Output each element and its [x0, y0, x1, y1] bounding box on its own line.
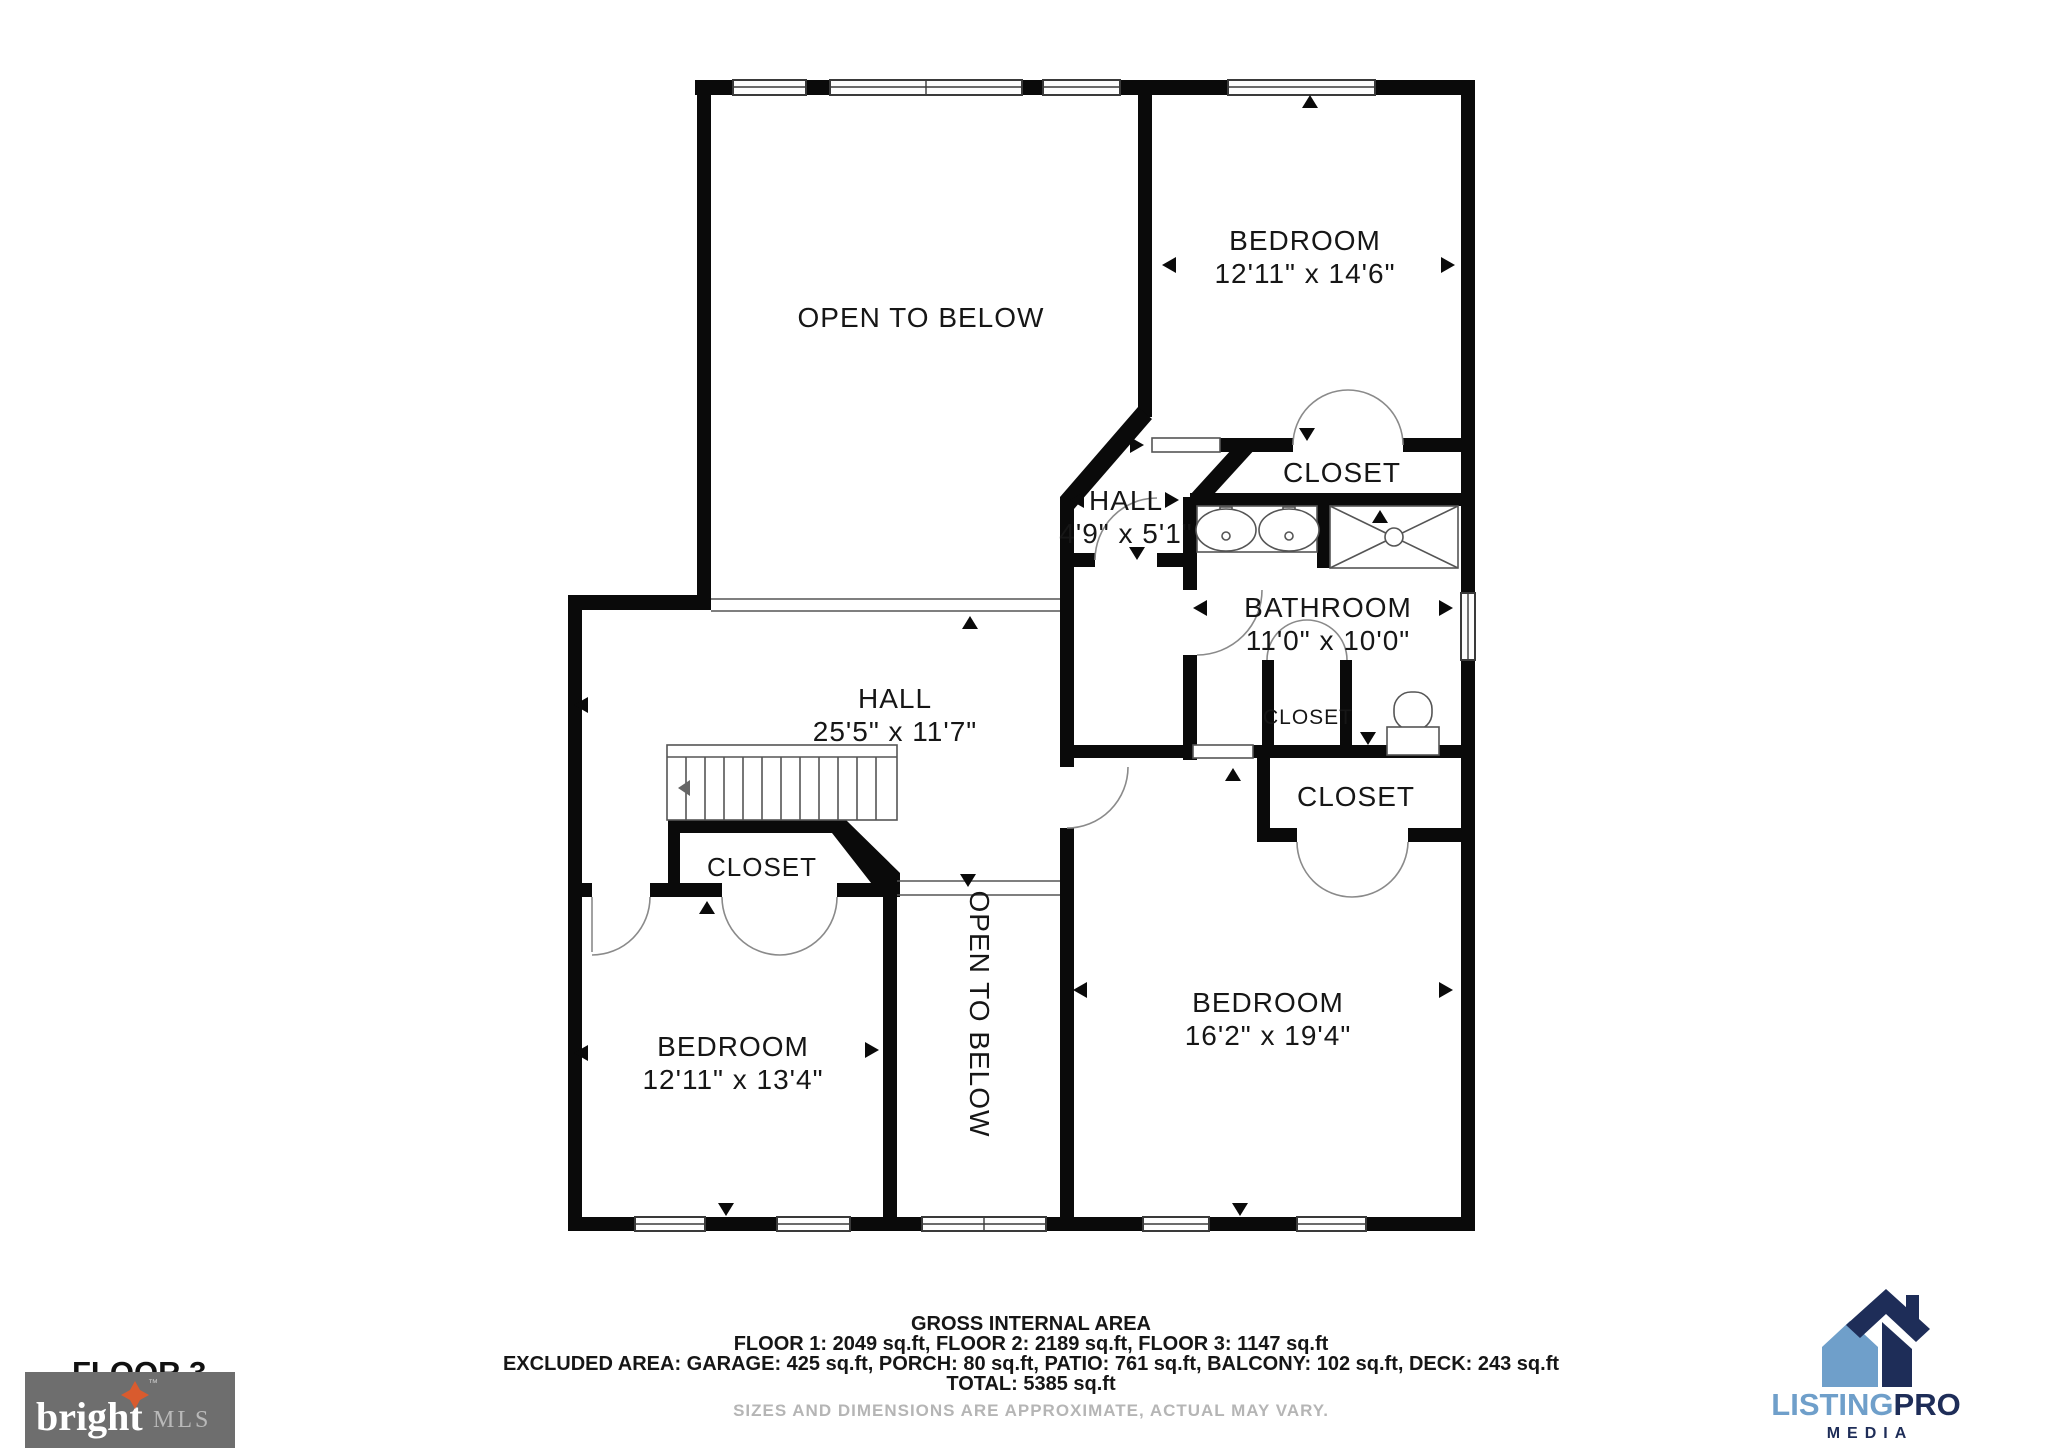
listingpro-logo: LISTINGPRO MEDIA — [1771, 1289, 1960, 1442]
sink-basin — [1259, 509, 1319, 551]
door-arc-left-bedroom-double-2 — [780, 897, 837, 955]
room-label-bedroom-top: BEDROOM — [1229, 225, 1381, 256]
room-dims-hall-main: 25'5" x 11'7" — [813, 716, 977, 747]
door-arc-master-closet-1 — [1297, 842, 1352, 897]
bright-trademark: ™ — [148, 1378, 158, 1389]
door-arc-top-closet-2 — [1348, 390, 1403, 445]
room-label-closet-hall: CLOSET — [707, 852, 817, 882]
listingpro-house-icon — [1822, 1289, 1930, 1387]
listingpro-listing-text: LISTING — [1771, 1387, 1893, 1422]
door-arc-left-bedroom-double-1 — [722, 897, 780, 955]
door-arc-master-bedroom — [1067, 767, 1128, 828]
room-dims-bedroom-left: 12'11" x 13'4" — [642, 1064, 823, 1095]
bright-mls-wordmark: bright — [36, 1394, 143, 1439]
footer-floor-areas: FLOOR 1: 2049 sq.ft, FLOOR 2: 2189 sq.ft… — [734, 1333, 1329, 1355]
footer-excluded-areas: EXCLUDED AREA: GARAGE: 425 sq.ft, PORCH:… — [503, 1353, 1559, 1375]
room-label-open-to-below-mid: OPEN TO BELOW — [964, 891, 995, 1138]
door-arc-top-closet-1 — [1293, 390, 1348, 445]
footer-disclaimer: SIZES AND DIMENSIONS ARE APPROXIMATE, AC… — [733, 1401, 1329, 1420]
shower-drain — [1385, 528, 1403, 546]
room-dims-hall-small: 4'9" x 5'1" — [1059, 518, 1192, 549]
footer-title: GROSS INTERNAL AREA — [911, 1313, 1151, 1335]
room-label-open-to-below-top: OPEN TO BELOW — [798, 302, 1045, 333]
listingpro-pro-text: PRO — [1894, 1387, 1961, 1422]
room-label-bedroom-master: BEDROOM — [1192, 987, 1344, 1018]
room-dims-bedroom-master: 16'2" x 19'4" — [1185, 1020, 1352, 1051]
floorplan-page: OPEN TO BELOW BEDROOM 12'11" x 14'6" CLO… — [0, 0, 2048, 1448]
door-arc-master-closet-2 — [1352, 842, 1408, 897]
room-label-closet-top: CLOSET — [1283, 457, 1401, 488]
footer: GROSS INTERNAL AREA FLOOR 1: 2049 sq.ft,… — [503, 1313, 1559, 1420]
toilet-bowl — [1394, 692, 1432, 730]
doorway-top-bedroom — [1152, 438, 1220, 452]
toilet-tank — [1387, 727, 1439, 755]
listingpro-wordmark: LISTINGPRO — [1771, 1387, 1960, 1422]
floorplan-drawing: OPEN TO BELOW BEDROOM 12'11" x 14'6" CLO… — [0, 0, 2048, 1448]
room-label-bathroom: BATHROOM — [1244, 592, 1412, 623]
sink-basin — [1196, 509, 1256, 551]
bright-mls-logo: bright ™ MLS — [25, 1372, 235, 1448]
listingpro-media-text: MEDIA — [1827, 1425, 1914, 1442]
room-dims-bathroom: 11'0" x 10'0" — [1246, 625, 1410, 656]
stairs-direction-arrow — [678, 780, 690, 796]
bright-mls-suffix: MLS — [153, 1407, 211, 1433]
room-label-hall-small: HALL — [1089, 485, 1163, 516]
footer-total-area: TOTAL: 5385 sq.ft — [946, 1373, 1116, 1395]
room-label-closet-master: CLOSET — [1297, 781, 1415, 812]
room-label-hall-main: HALL — [858, 683, 932, 714]
room-dims-bedroom-top: 12'11" x 14'6" — [1214, 258, 1395, 289]
room-label-bedroom-left: BEDROOM — [657, 1031, 809, 1062]
staircase — [667, 745, 897, 820]
door-arc-left-bedroom — [592, 897, 650, 955]
doorway-bath-bedroom — [1193, 745, 1253, 758]
room-label-closet-bathroom: CLOSET — [1263, 706, 1353, 729]
